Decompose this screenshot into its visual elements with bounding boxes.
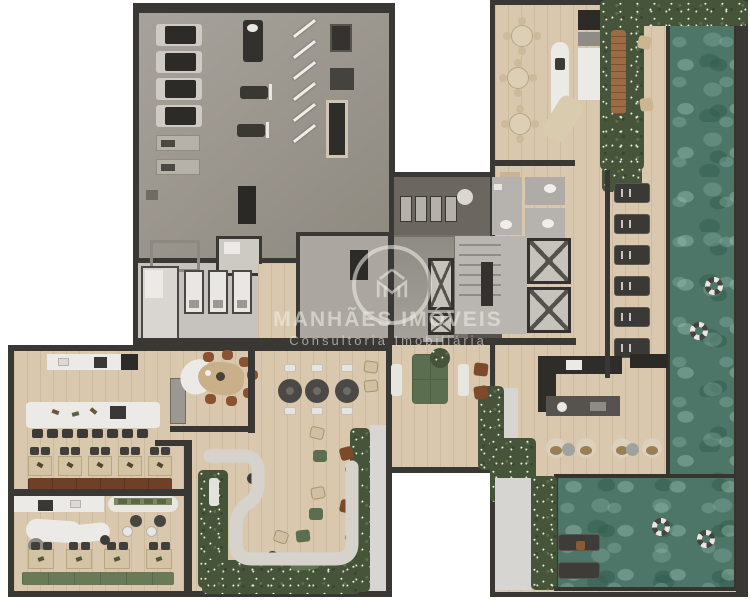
bench-planter (345, 463, 358, 476)
garden-path (495, 478, 531, 590)
cooktop (94, 357, 107, 368)
dining-chair (203, 352, 214, 362)
banquette (22, 572, 174, 585)
sun-lounger (614, 245, 650, 265)
bar-shelf (630, 354, 668, 368)
dumbbell-rack (238, 186, 256, 224)
changing-floor (258, 264, 296, 342)
pool-stool (576, 541, 585, 550)
chair (161, 447, 170, 455)
stool (122, 429, 133, 438)
cafe-table (509, 113, 531, 135)
chair (150, 447, 159, 455)
pouf (364, 379, 379, 392)
elevator (428, 258, 454, 310)
cafe-table (507, 67, 529, 89)
dining-chair (222, 350, 233, 360)
stair-steps (459, 240, 501, 296)
locker-pouf (457, 189, 473, 205)
interior-wall (443, 338, 576, 345)
pouf (309, 426, 325, 441)
elevator (527, 238, 571, 284)
stool (107, 429, 118, 438)
interior-wall (248, 345, 255, 433)
locker (430, 196, 442, 222)
strength-machine (326, 100, 348, 158)
dining-island (26, 402, 160, 428)
garden-path (370, 425, 386, 591)
sun-lounger (614, 214, 650, 234)
lounge-chair (311, 407, 323, 415)
appliance-column (578, 10, 600, 30)
interior-wall (8, 489, 186, 496)
interior-wall (493, 160, 575, 166)
day-bed (391, 364, 402, 396)
locker (400, 196, 412, 222)
rowing-machine (156, 159, 200, 175)
round-table (335, 379, 359, 403)
food-tray (157, 499, 166, 504)
cooktop (555, 58, 565, 70)
weight-bench (237, 124, 265, 137)
side-table (247, 473, 258, 484)
interior-wall (170, 426, 255, 432)
food-tray (144, 499, 153, 504)
chair (41, 447, 50, 455)
shower-fixture (213, 300, 223, 308)
kitchen-counter (14, 496, 104, 512)
service-room-floor (296, 232, 392, 344)
wicker-table (639, 97, 654, 112)
side-table (626, 443, 639, 456)
elevator (428, 313, 454, 335)
life-ring (690, 322, 708, 340)
stool (137, 429, 148, 438)
gym-wc-fixture (224, 242, 240, 254)
chair (107, 542, 116, 550)
pool-edge-wall (736, 4, 748, 594)
strength-machine (330, 68, 354, 90)
garden-bench (209, 478, 219, 506)
toilet (500, 220, 512, 229)
shell-chair (642, 438, 662, 458)
plate (557, 402, 567, 412)
chair (30, 447, 39, 455)
stool-round (146, 526, 157, 537)
chair (60, 447, 69, 455)
chair (120, 447, 129, 455)
fridge (121, 354, 138, 370)
pool-lap-lane (666, 8, 738, 478)
lounge-chair (341, 364, 353, 372)
appliance-column (578, 32, 600, 46)
chair (71, 447, 80, 455)
toilet (544, 184, 556, 193)
food-tray (131, 499, 140, 504)
menu-stand (590, 402, 606, 411)
interior-wall (184, 440, 192, 597)
lounge-chair (284, 407, 296, 415)
lounge-chair (341, 407, 353, 415)
gym-storage-box (146, 190, 158, 200)
pouf (295, 529, 310, 542)
table-decor (216, 372, 225, 381)
armchair (473, 385, 489, 400)
food-tray (118, 499, 127, 504)
rowing-machine (156, 135, 200, 151)
day-bed (458, 364, 469, 396)
chair (90, 447, 99, 455)
sun-lounger (614, 183, 650, 203)
armchair (339, 499, 355, 515)
chair (31, 542, 40, 550)
dining-chair (226, 396, 237, 406)
shower-fixture (189, 300, 199, 308)
pouf (363, 360, 379, 374)
chair (43, 542, 52, 550)
dining-chair (205, 394, 216, 404)
elevator (527, 287, 571, 333)
locker (415, 196, 427, 222)
pouf (130, 515, 142, 527)
round-table (278, 379, 302, 403)
stool-round (122, 526, 133, 537)
treadmill (156, 78, 202, 100)
wicker-table (637, 35, 652, 50)
bench-planter (345, 531, 358, 544)
lounge-chair (311, 364, 323, 372)
treadmill (156, 24, 202, 46)
chair (161, 542, 170, 550)
sun-lounger (614, 307, 650, 327)
lounge-chair (284, 364, 296, 372)
cable-machine-seat (247, 24, 258, 32)
chair (81, 542, 90, 550)
chair (149, 542, 158, 550)
life-ring (697, 530, 715, 548)
strength-machine (330, 24, 352, 52)
side-table (562, 443, 575, 456)
cooktop (110, 406, 126, 419)
pouf (154, 515, 166, 527)
counter (578, 48, 600, 100)
sink (70, 500, 81, 508)
bar-sink (566, 360, 582, 370)
life-ring (652, 518, 670, 536)
water-lounger (558, 562, 600, 579)
sun-lounger (614, 276, 650, 296)
interior-wall (133, 338, 423, 345)
stool (47, 429, 58, 438)
stool (92, 429, 103, 438)
shower-fixture (237, 300, 247, 308)
stool (77, 429, 88, 438)
pouf (309, 508, 323, 520)
life-ring (705, 277, 723, 295)
kiosk (350, 250, 368, 280)
treadmill (156, 51, 202, 73)
pouf (313, 450, 327, 462)
stair-column (481, 262, 493, 306)
cafe-table (511, 25, 533, 47)
interior-wall (605, 170, 610, 378)
teak-bench (611, 30, 626, 114)
planter-hedge (202, 560, 360, 594)
side-table (267, 551, 278, 562)
toilet (542, 219, 554, 228)
shell-chair (576, 438, 596, 458)
floor-plan-canvas: MANHÃES IMÓVEIS Consultoria Imobiliária (0, 0, 750, 600)
locker (445, 196, 457, 222)
weight-bench (240, 86, 268, 99)
interior-wall (155, 440, 192, 446)
potted-plant (430, 348, 450, 368)
sink (494, 184, 502, 190)
sink (58, 358, 69, 366)
chair (131, 447, 140, 455)
cooktop (38, 500, 53, 511)
pouf (310, 486, 326, 500)
round-table (305, 379, 329, 403)
stool (62, 429, 73, 438)
treadmill (156, 105, 202, 127)
armchair (473, 362, 488, 376)
chair (69, 542, 78, 550)
planter-hedge (531, 476, 557, 590)
shower-fixture (145, 270, 163, 298)
stool (32, 429, 43, 438)
chair (119, 542, 128, 550)
table-decor (205, 370, 211, 376)
chair (101, 447, 110, 455)
